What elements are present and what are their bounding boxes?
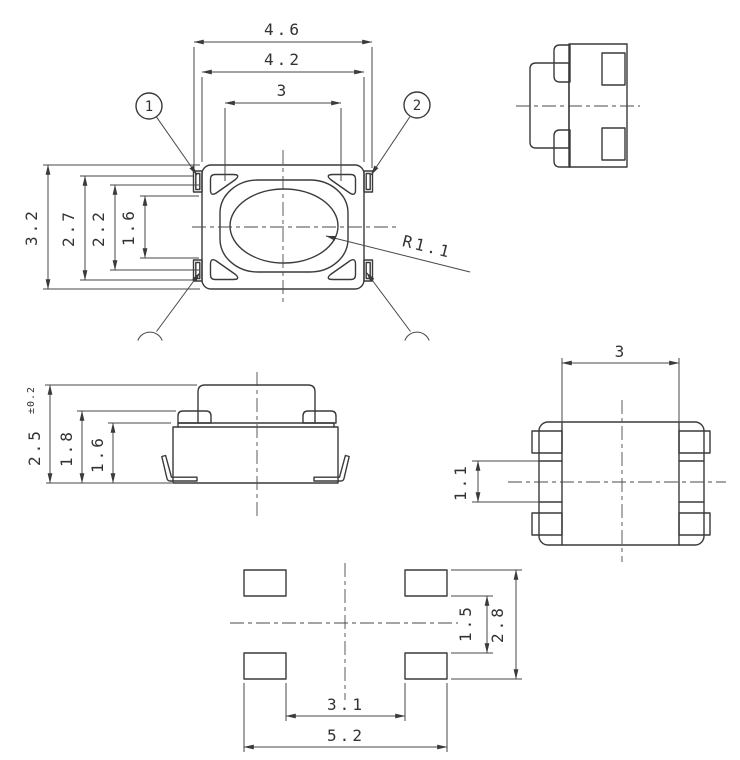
balloon-label-2: 2: [413, 98, 421, 114]
leader-bottom-left: [157, 273, 201, 332]
dim-label-width-outer: 4.6: [264, 20, 302, 39]
cropped-balloon-arc-left: [138, 332, 162, 341]
corner-chamfer-bottom-left: [211, 260, 238, 280]
front-button-outline: [198, 385, 315, 423]
dim-label-body-height: 1.6: [88, 435, 107, 473]
front-lead-right: [314, 456, 349, 482]
land-pattern-view: 1.5 2.8 3.1 5.2: [230, 563, 522, 752]
side-body-outline: [569, 44, 627, 167]
balloon-callout-2: 2: [371, 92, 430, 175]
balloon-label-1: 1: [145, 99, 153, 115]
pad-top-left: [244, 570, 286, 596]
leader-bottom-right: [367, 273, 411, 332]
corner-chamfer-top-left: [211, 175, 238, 195]
bottom-tab-top-right: [679, 431, 710, 453]
side-view: [516, 44, 640, 167]
dim-label-total-height-tolerance: ±0.2: [26, 386, 37, 414]
dim-label-pad-gap-h: 3.1: [327, 695, 365, 714]
terminal-bottom-right: [364, 260, 373, 281]
dim-label-height-inner: 1.6: [119, 208, 138, 246]
dim-label-height-body: 3.2: [22, 208, 41, 246]
dim-label-total-height: 2.5: [25, 428, 44, 466]
bottom-view: 3 1.1: [451, 342, 726, 562]
cropped-balloon-arc-right: [405, 332, 429, 341]
technical-drawing-canvas: 4.6 4.2 3 3.2 2.7 2.2 1.6 1 2 R1.1: [0, 0, 740, 760]
bottom-tab-bottom-left: [532, 513, 562, 535]
bottom-centerlines: [508, 400, 726, 562]
dim-label-width-body: 4.2: [264, 50, 302, 69]
front-terminal-bump-left: [178, 411, 211, 423]
dim-label-pad-span-v: 2.8: [488, 605, 507, 643]
dim-label-terminal-span: 3: [615, 342, 628, 361]
front-lead-left: [162, 456, 197, 482]
dim-label-pad-gap-v: 1.5: [456, 604, 475, 642]
bottom-tab-bottom-right: [679, 513, 710, 535]
bottom-tab-top-left: [532, 431, 562, 453]
dim-label-height-terminals: 2.7: [59, 209, 78, 247]
pad-bottom-left: [244, 653, 286, 679]
radius-label: R1.1: [401, 231, 455, 262]
dim-label-height-button: 2.2: [89, 209, 108, 247]
terminal-top-left: [194, 171, 203, 192]
dim-label-terminal-height: 1.8: [57, 429, 76, 467]
dim-label-pad-span-h: 5.2: [327, 726, 365, 745]
bottom-extension-lines: [472, 358, 679, 502]
side-notch-bottom: [602, 128, 625, 160]
pad-top-right: [405, 570, 447, 596]
balloon-callout-1: 1: [136, 93, 197, 175]
front-body-outline: [173, 427, 338, 483]
button-inner-outline: [230, 189, 338, 263]
front-view: 2.5 ±0.2 1.8 1.6: [25, 372, 349, 518]
dim-label-width-button: 3: [277, 81, 290, 100]
front-terminal-bump-right: [303, 411, 336, 423]
balloon-leader-2: [371, 117, 410, 175]
dim-label-terminal-gap: 1.1: [451, 463, 470, 501]
corner-chamfer-top-right: [328, 175, 355, 195]
corner-chamfer-bottom-right: [328, 260, 355, 280]
side-notch-top: [602, 53, 625, 85]
top-view: 4.6 4.2 3 3.2 2.7 2.2 1.6 1 2 R1.1: [22, 20, 470, 341]
extension-lines: [43, 47, 372, 289]
bottom-terminal-inner-edges: [562, 422, 679, 545]
button-outer-outline: [220, 180, 348, 272]
pad-bottom-right: [405, 653, 447, 679]
side-button-outline: [530, 63, 569, 148]
balloon-leader-1: [156, 117, 197, 175]
drawing-sheet: 4.6 4.2 3 3.2 2.7 2.2 1.6 1 2 R1.1: [0, 0, 740, 760]
